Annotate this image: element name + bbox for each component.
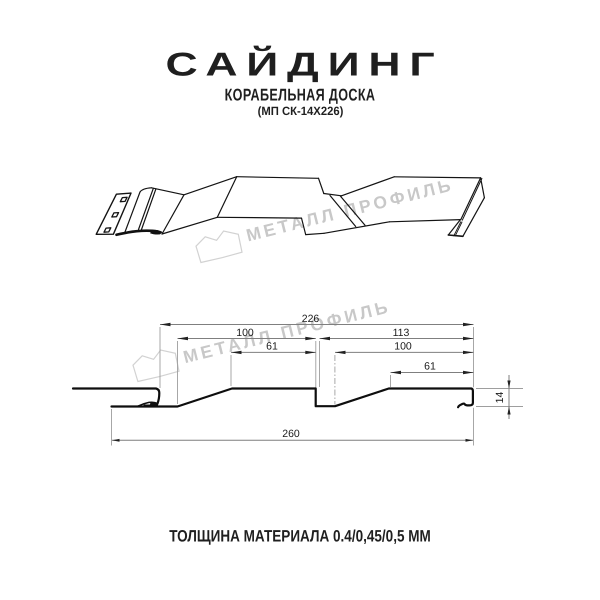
svg-text:САЙДИНГ: САЙДИНГ [165,46,443,83]
svg-text:(МП СК-14Х226): (МП СК-14Х226) [258,104,344,118]
svg-text:61: 61 [424,361,436,373]
svg-text:ТОЛЩИНА МАТЕРИАЛА 0.4/0,45/0,5: ТОЛЩИНА МАТЕРИАЛА 0.4/0,45/0,5 ММ [169,528,431,546]
svg-text:14: 14 [494,392,506,404]
svg-text:113: 113 [393,327,410,339]
svg-text:61: 61 [266,341,278,353]
svg-text:КОРАБЕЛЬНАЯ ДОСКА: КОРАБЕЛЬНАЯ ДОСКА [225,86,376,105]
svg-text:226: 226 [302,313,320,325]
svg-text:100: 100 [236,327,254,339]
svg-text:100: 100 [394,341,412,353]
svg-text:260: 260 [282,428,300,440]
